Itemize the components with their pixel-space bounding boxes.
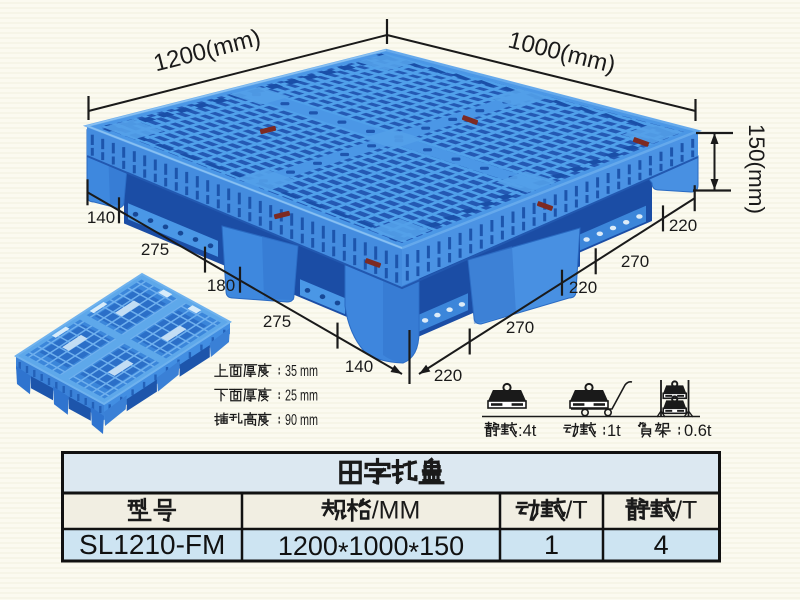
svg-text:220: 220 — [569, 278, 597, 297]
svg-text:35 mm: 35 mm — [285, 363, 318, 380]
svg-text:140: 140 — [87, 208, 115, 227]
svg-text:/MM: /MM — [372, 497, 421, 525]
svg-text:/T: /T — [675, 497, 697, 525]
svg-text:25 mm: 25 mm — [285, 388, 318, 405]
svg-text:0.6t: 0.6t — [684, 422, 712, 440]
svg-text:180: 180 — [207, 276, 235, 295]
svg-text:4: 4 — [654, 530, 669, 560]
svg-text:270: 270 — [506, 318, 534, 337]
svg-text:/T: /T — [565, 497, 587, 525]
svg-text:150(mm): 150(mm) — [744, 124, 769, 214]
svg-text:140: 140 — [345, 357, 373, 376]
svg-text:275: 275 — [263, 312, 291, 331]
svg-text::4t: :4t — [518, 422, 537, 440]
svg-text:275: 275 — [141, 240, 169, 259]
svg-text:1t: 1t — [607, 422, 621, 440]
svg-text:90 mm: 90 mm — [285, 412, 318, 429]
svg-text:220: 220 — [434, 366, 462, 385]
svg-text:270: 270 — [621, 252, 649, 271]
svg-text:220: 220 — [669, 216, 697, 235]
svg-text:SL1210-FM: SL1210-FM — [79, 529, 225, 560]
svg-text:1: 1 — [544, 530, 559, 560]
